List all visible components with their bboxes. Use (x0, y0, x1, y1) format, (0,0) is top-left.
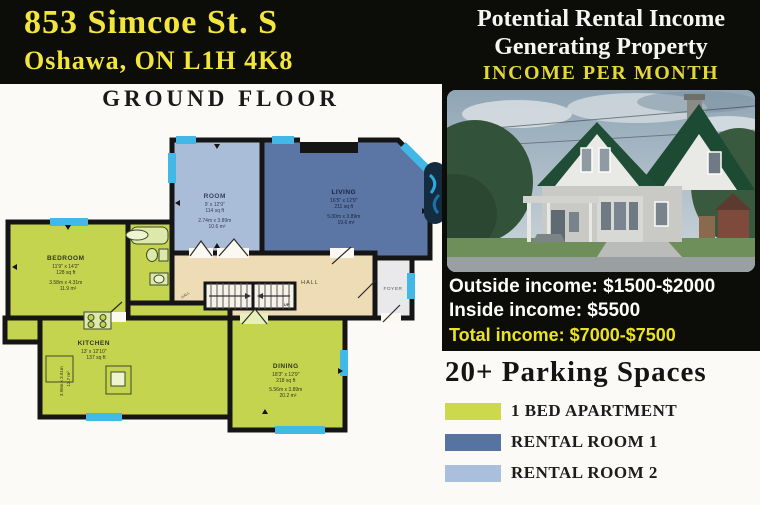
income-outside: Outside income: $1500-$2000 (449, 276, 715, 298)
legend-swatch-apartment (445, 403, 501, 420)
right-header-line-3: INCOME PER MONTH (442, 62, 760, 85)
parking-title: 20+ Parking Spaces (445, 356, 707, 389)
income-total: Total income: $7000-$7500 (449, 325, 676, 346)
room-nook (5, 318, 40, 342)
right-header-line-2: Generating Property (442, 34, 760, 61)
legend-label-rental2: RENTAL ROOM 2 (511, 463, 658, 483)
legend-label-apartment: 1 BED APARTMENT (511, 401, 677, 421)
legend-row-rental2: RENTAL ROOM 2 (445, 464, 677, 482)
legend-row-rental1: RENTAL ROOM 1 (445, 433, 677, 451)
floor-title: GROUND FLOOR (0, 86, 442, 112)
stairs (205, 283, 295, 309)
legend-row-apartment: 1 BED APARTMENT (445, 402, 677, 420)
chimney-notch (300, 131, 358, 153)
room-kitchen (40, 318, 230, 417)
label-hall-main: HALL (301, 280, 319, 286)
address-line-2: Oshawa, ON L1H 4K8 (24, 46, 293, 76)
floor-plan: ROOM 9' x 12'9" 114 sq ft 2.74m x 3.89m … (0, 84, 442, 505)
house-photo-art (447, 90, 755, 272)
right-panel: Potential Rental Income Generating Prope… (442, 0, 760, 351)
legend-swatch-rental1 (445, 434, 501, 451)
legend-label-rental1: RENTAL ROOM 1 (511, 432, 658, 452)
legend: 1 BED APARTMENT RENTAL ROOM 1 RENTAL ROO… (445, 402, 677, 495)
house-photo (447, 90, 755, 272)
address-banner: 853 Simcoe St. S Oshawa, ON L1H 4K8 (0, 0, 442, 84)
label-up: UP (284, 303, 290, 307)
right-header-line-1: Potential Rental Income (442, 6, 760, 33)
flyer-canvas: 853 Simcoe St. S Oshawa, ON L1H 4K8 GROU… (0, 0, 760, 505)
legend-swatch-rental2 (445, 465, 501, 482)
label-foyer: FOYER (383, 286, 402, 292)
address-line-1: 853 Simcoe St. S (24, 4, 278, 42)
income-inside: Inside income: $5500 (449, 300, 640, 322)
